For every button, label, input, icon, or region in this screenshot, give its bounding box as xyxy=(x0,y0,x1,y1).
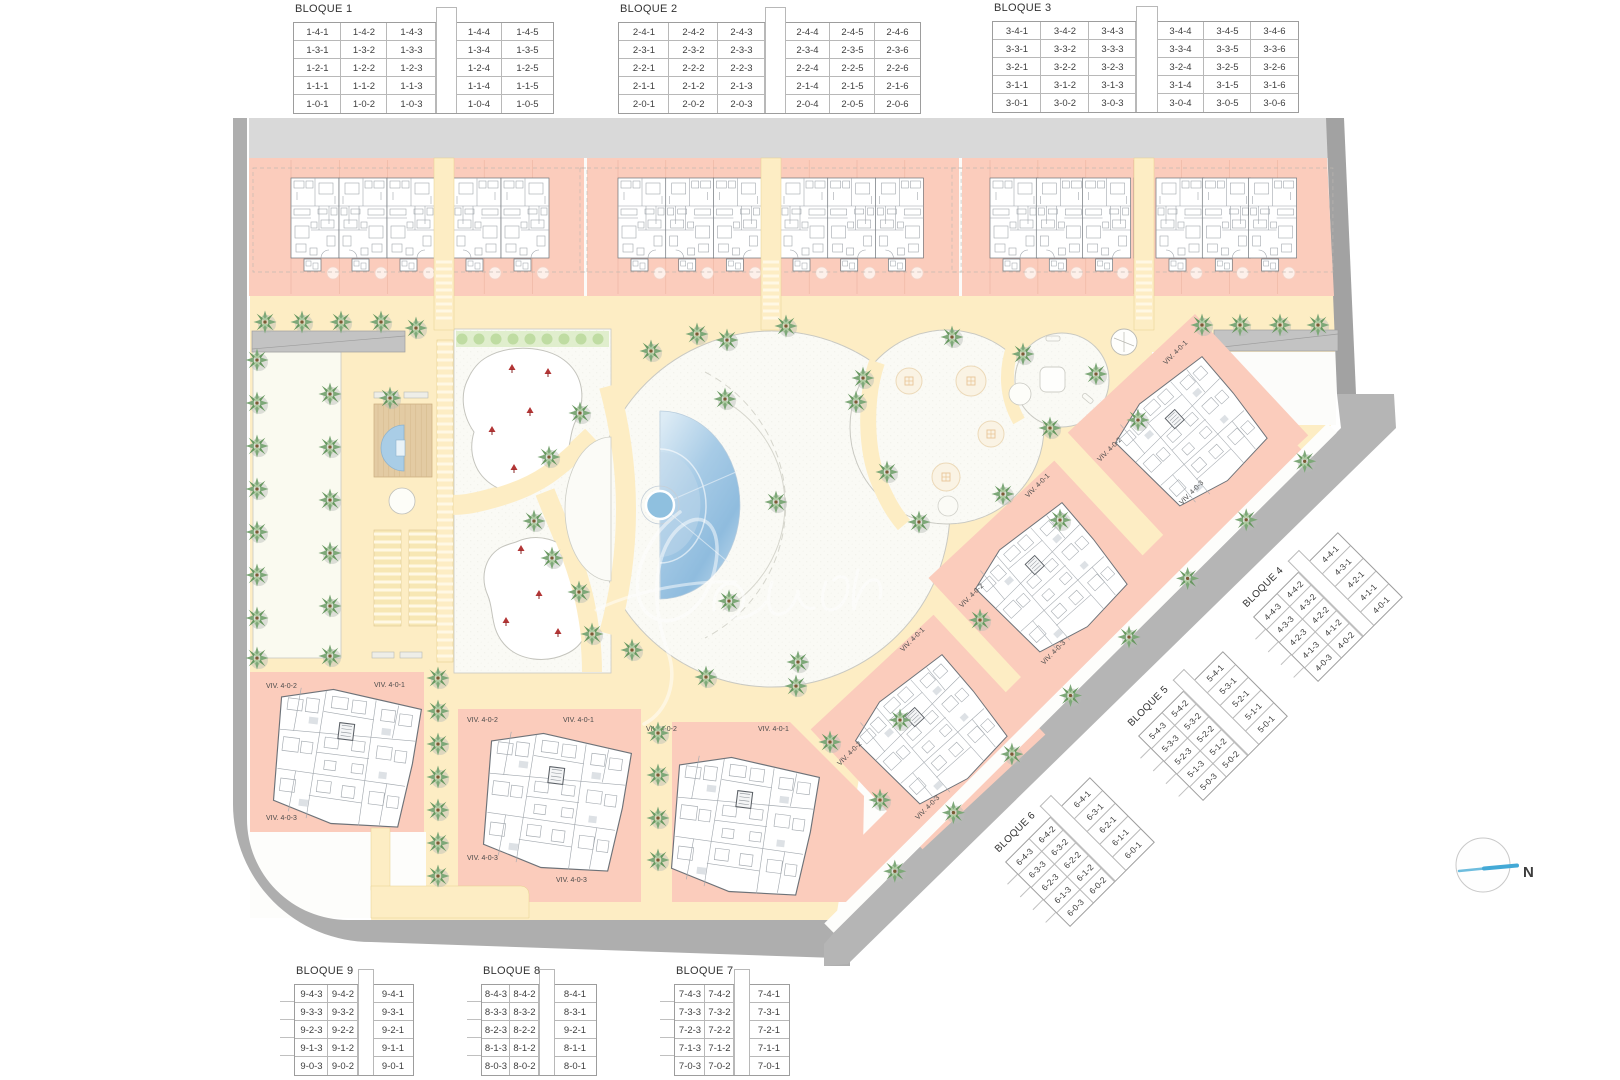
svg-text:VIV. 4-0-3: VIV. 4-0-3 xyxy=(266,815,297,822)
svg-text:VIV. 4-0-2: VIV. 4-0-2 xyxy=(467,717,498,724)
svg-text:VIV. 4-0-1: VIV. 4-0-1 xyxy=(563,717,594,724)
svg-text:VIV. 4-0-3: VIV. 4-0-3 xyxy=(467,855,498,862)
svg-text:VIV. 4-0-1: VIV. 4-0-1 xyxy=(374,682,405,689)
svg-text:VIV. 4-0-1: VIV. 4-0-1 xyxy=(758,726,789,733)
svg-text:VIV. 4-0-3: VIV. 4-0-3 xyxy=(556,877,587,884)
svg-text:VIV. 4-0-2: VIV. 4-0-2 xyxy=(266,683,297,690)
svg-text:N: N xyxy=(1523,864,1534,881)
